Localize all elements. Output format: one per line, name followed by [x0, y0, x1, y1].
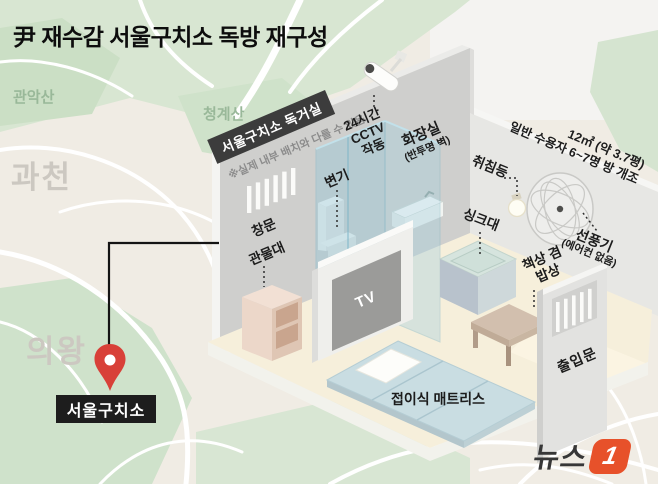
news1-logo-text: 뉴스: [530, 436, 591, 476]
news1-logo-badge: 1: [587, 439, 632, 474]
locker-shelf-icon: [242, 285, 302, 361]
left-wall-outer-edge: [212, 149, 220, 345]
pin-label: 서울구치소: [56, 395, 156, 423]
map-label-uiwang: 의왕: [26, 326, 87, 371]
news1-logo: 뉴스 1: [534, 436, 629, 476]
infographic-canvas: 尹 재수감 서울구치소 독방 재구성 관악산 청계산 과천 의왕 서울구치소 서…: [0, 0, 658, 484]
corner-edge: [470, 48, 474, 115]
map-label-cheonggyesan: 청계산: [203, 103, 244, 124]
map-label-gwanaksan: 관악산: [13, 86, 54, 107]
map-label-gwacheon: 과천: [11, 152, 72, 197]
label-mattress: 접이식 매트리스: [391, 391, 485, 407]
page-title: 尹 재수감 서울구치소 독방 재구성: [13, 18, 328, 52]
